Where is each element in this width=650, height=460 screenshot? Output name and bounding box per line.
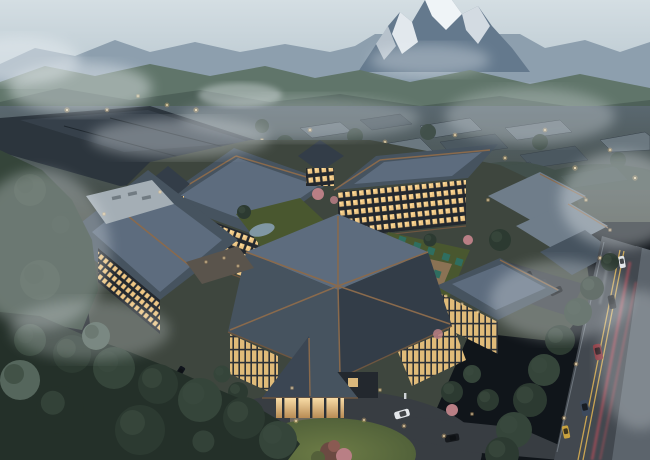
blossom-tree xyxy=(463,235,473,245)
center-shrub xyxy=(328,440,340,452)
blossom-shrub xyxy=(446,404,458,416)
blossom-tree xyxy=(312,188,324,200)
architectural-rendering xyxy=(0,0,650,460)
blossom-tree xyxy=(330,196,338,204)
pedestrian xyxy=(404,393,406,399)
resort-aerial-scene xyxy=(0,0,650,460)
blossom-shrub xyxy=(433,329,443,339)
